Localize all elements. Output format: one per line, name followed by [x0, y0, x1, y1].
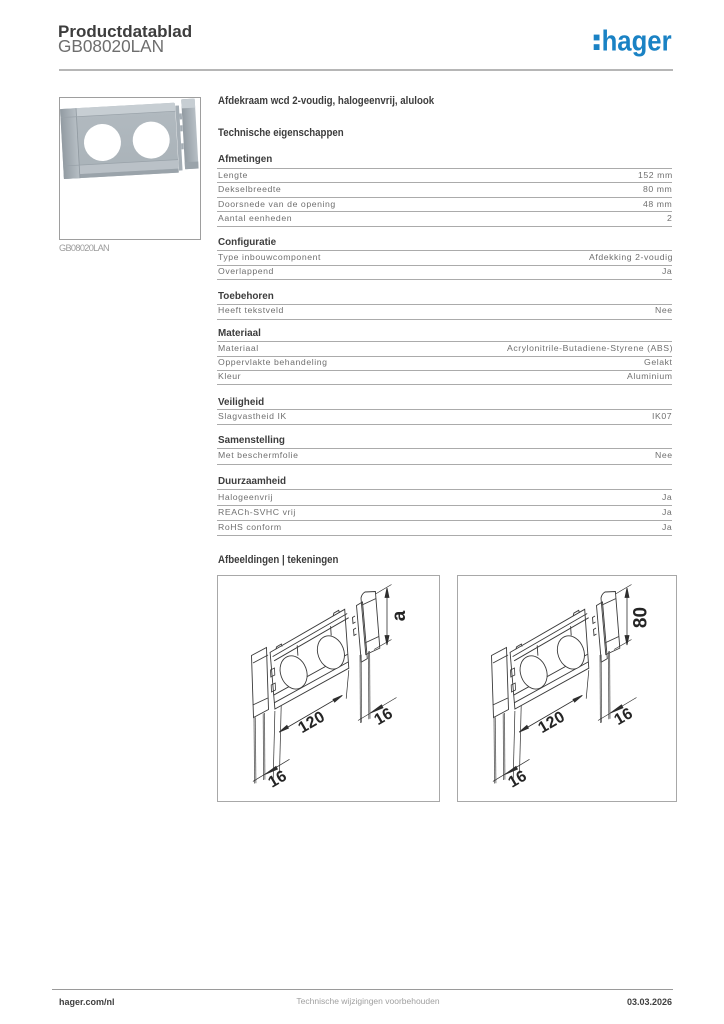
svg-text:a: a — [389, 610, 410, 621]
svg-text:80: 80 — [630, 606, 651, 627]
svg-text:hager: hager — [602, 26, 672, 58]
